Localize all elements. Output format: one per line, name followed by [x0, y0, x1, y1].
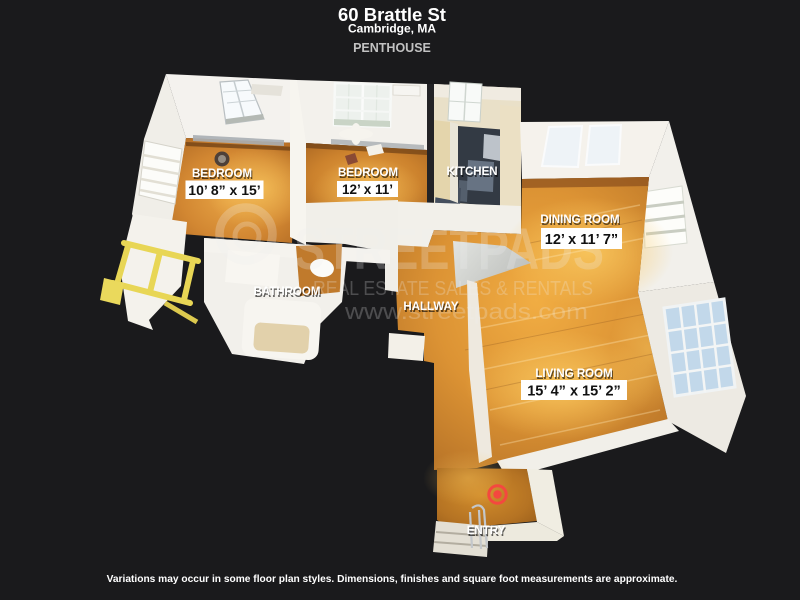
svg-text:BATHROOM: BATHROOM [254, 286, 321, 298]
svg-text:10’ 8” x 15’: 10’ 8” x 15’ [188, 182, 260, 198]
svg-text:DINING ROOM: DINING ROOM [540, 214, 619, 226]
svg-text:Variations may occur in some f: Variations may occur in some floor plan … [107, 574, 678, 585]
svg-text:KITCHEN: KITCHEN [446, 166, 497, 178]
svg-text:LIVING ROOM: LIVING ROOM [535, 368, 612, 380]
svg-text:www.streetpads.com: www.streetpads.com [344, 299, 588, 324]
svg-text:15’ 4” x 15’ 2”: 15’ 4” x 15’ 2” [527, 384, 621, 400]
svg-text:HALLWAY: HALLWAY [403, 301, 458, 313]
svg-text:REAL ESTATE SALES & RENTALS: REAL ESTATE SALES & RENTALS [313, 278, 593, 300]
svg-text:ENTRY: ENTRY [467, 525, 506, 537]
svg-text:12’ x 11’: 12’ x 11’ [342, 182, 393, 197]
svg-text:BEDROOM: BEDROOM [338, 167, 398, 179]
svg-text:Cambridge, MA: Cambridge, MA [348, 22, 436, 36]
svg-text:BEDROOM: BEDROOM [192, 168, 252, 180]
svg-text:PENTHOUSE: PENTHOUSE [353, 41, 431, 55]
svg-text:12’ x 11’ 7”: 12’ x 11’ 7” [545, 232, 618, 248]
